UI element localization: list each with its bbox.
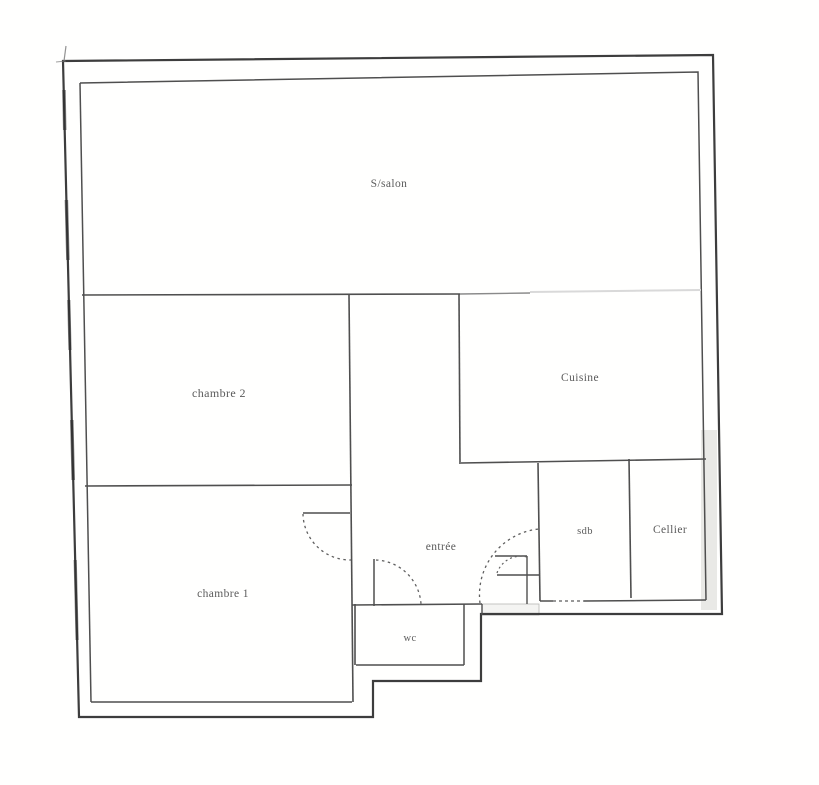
wall-sdb-left	[538, 463, 540, 601]
room-label-cuisine: Cuisine	[561, 372, 599, 384]
wall-cuisine-left	[459, 294, 460, 464]
room-entree	[353, 296, 458, 604]
wall-cellier-bottom	[584, 600, 706, 601]
scan-blob-2	[66, 200, 68, 260]
wall-cuisine-top	[460, 293, 530, 294]
room-label-salon: S/salon	[371, 178, 408, 190]
door-swing-arc-closet	[497, 556, 527, 573]
wall-chambre2-bottom	[85, 485, 352, 486]
scan-blob-4	[72, 420, 73, 480]
room-label-chambre2: chambre 2	[192, 386, 246, 400]
scan-blob-1	[64, 90, 65, 130]
scan-blob-3	[69, 300, 70, 350]
room-label-wc: wc	[403, 633, 416, 644]
room-label-sdb: sdb	[577, 526, 593, 537]
room-label-chambre1: chambre 1	[197, 588, 249, 600]
wall-salon-bottom	[82, 294, 460, 295]
wall-entree-bottom	[352, 604, 482, 605]
room-label-entree: entrée	[426, 541, 457, 553]
scanned-floorplan-page: S/salon chambre 2 Cuisine chambre 1 entr…	[0, 0, 819, 785]
room-label-cellier: Cellier	[653, 524, 687, 536]
scan-tick-top-left	[64, 46, 66, 61]
door-swing-arc-sdb	[479, 529, 539, 603]
room-regions	[82, 82, 706, 701]
scan-blob-5	[75, 560, 77, 640]
floorplan-drawing: S/salon chambre 2 Cuisine chambre 1 entr…	[0, 0, 819, 785]
wall-sdb-cellier-divider	[629, 459, 631, 598]
